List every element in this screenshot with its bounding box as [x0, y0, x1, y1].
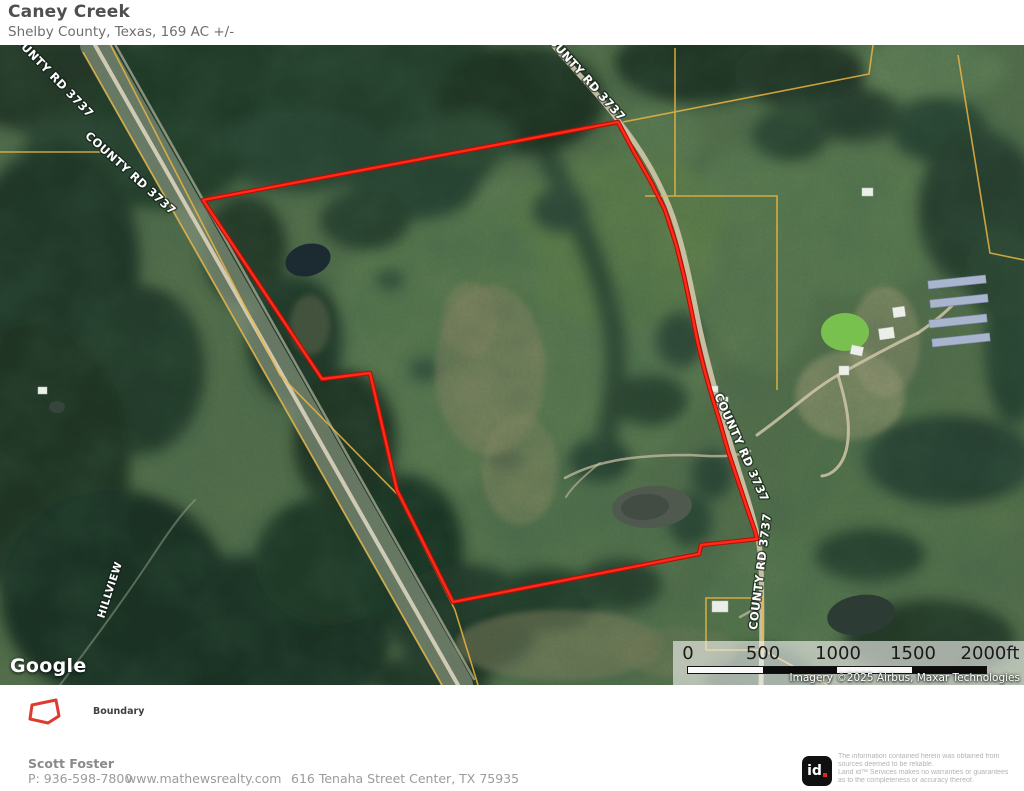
property-map-page: Caney Creek Shelby County, Texas, 169 AC…	[0, 0, 1024, 791]
scale-tick-500: 500	[746, 643, 780, 664]
agency-website-link[interactable]: www.mathewsrealty.com	[126, 771, 281, 786]
disclaimer-line-4: as to the completeness or accuracy there…	[838, 777, 1020, 785]
page-title: Caney Creek	[8, 2, 130, 22]
boundary-legend-icon	[25, 697, 65, 729]
google-logo[interactable]: Google	[10, 655, 87, 677]
scale-tick-1500: 1500	[890, 643, 936, 664]
legend-item-boundary: Boundary	[93, 706, 144, 717]
scale-tick-2000: 2000ft	[961, 643, 1020, 664]
scale-tick-1000: 1000	[815, 643, 861, 664]
disclaimer-line-2: sources deemed to be reliable.	[838, 761, 1020, 769]
land-id-logo: id	[802, 756, 832, 786]
satellite-map: COUNTY RD 3737 COUNTY RD 3737 COUNTY RD …	[0, 45, 1024, 685]
page-subtitle: Shelby County, Texas, 169 AC +/-	[8, 24, 234, 40]
page-footer: Scott Foster P: 936-598-7800 www.mathews…	[0, 745, 1024, 791]
legend-bar: Boundary	[0, 685, 1024, 745]
agent-name: Scott Foster	[28, 756, 114, 771]
scale-tick-0: 0	[682, 643, 693, 664]
disclaimer-line-1: The information contained herein was obt…	[838, 753, 1020, 761]
agent-phone: P: 936-598-7800	[28, 771, 132, 786]
house-southeast	[712, 601, 728, 612]
agency-address: 616 Tenaha Street Center, TX 75935	[291, 771, 519, 786]
land-id-logo-text: id	[807, 764, 822, 778]
imagery-attribution: Imagery ©2025 Airbus, Maxar Technologies	[790, 672, 1020, 684]
land-id-logo-dot	[823, 773, 827, 777]
disclaimer-text: The information contained herein was obt…	[838, 753, 1020, 785]
page-header: Caney Creek Shelby County, Texas, 169 AC…	[0, 0, 1024, 45]
satellite-map-viewport[interactable]: COUNTY RD 3737 COUNTY RD 3737 COUNTY RD …	[0, 45, 1024, 685]
disclaimer-line-3: Land id™ Services makes no warranties or…	[838, 769, 1020, 777]
green-field-patch	[821, 313, 869, 351]
map-scale-bar: 0 500 1000 1500 2000ft Imagery ©2025 Air…	[673, 641, 1024, 685]
